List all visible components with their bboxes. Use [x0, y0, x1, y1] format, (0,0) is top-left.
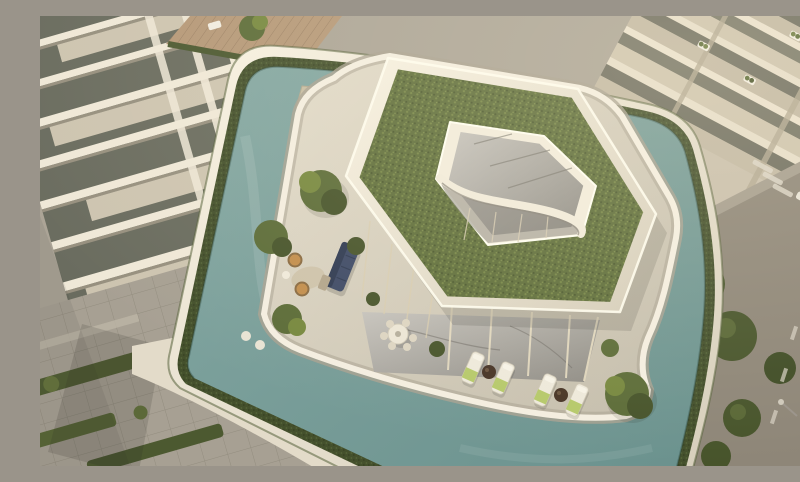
scene-canvas: Aerial render of a rooftop terrace with … [40, 16, 800, 466]
rooftop-render: Aerial render of a rooftop terrace with … [40, 16, 800, 466]
sunlight-overlay [40, 16, 800, 466]
